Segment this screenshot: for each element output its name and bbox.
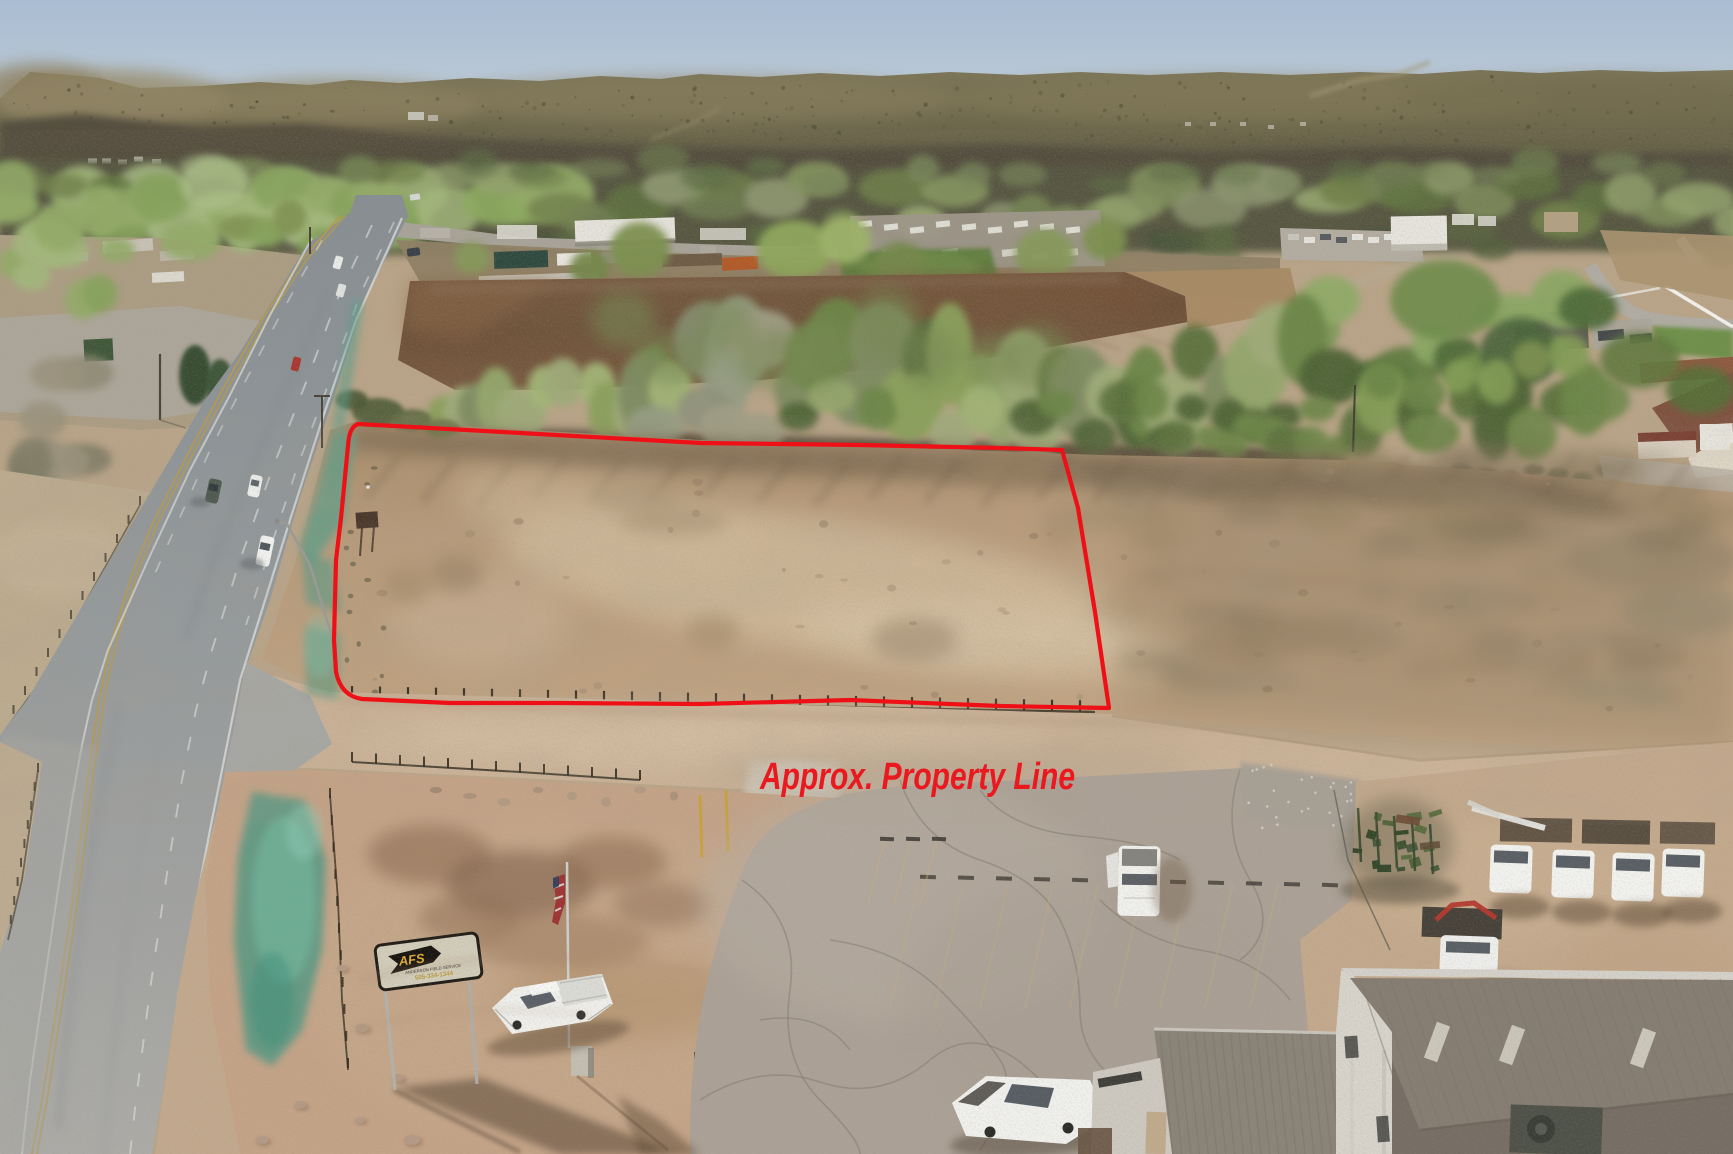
svg-text:Approx. Property Line: Approx. Property Line: [759, 756, 1075, 798]
